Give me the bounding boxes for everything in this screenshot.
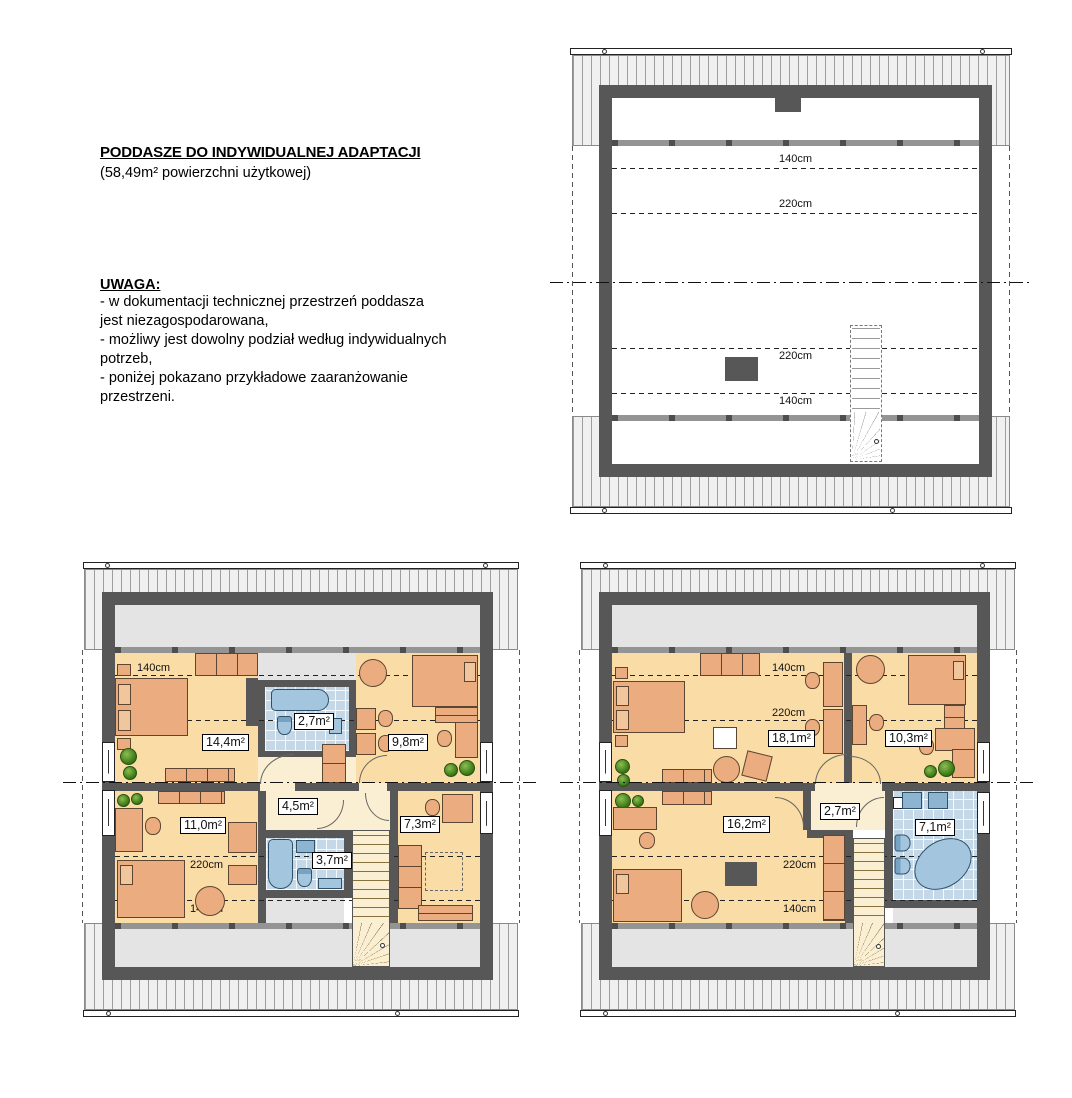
staircase bbox=[352, 830, 390, 967]
room-area-label: 7,1m² bbox=[915, 819, 955, 836]
plant-icon bbox=[117, 794, 130, 807]
room-area-label: 4,5m² bbox=[278, 798, 318, 815]
room-area-label: 10,3m² bbox=[885, 730, 932, 747]
door-opening bbox=[815, 783, 882, 791]
desk bbox=[613, 807, 657, 830]
desk bbox=[115, 808, 143, 852]
interior-wall bbox=[612, 783, 815, 791]
gutter-marker bbox=[602, 49, 607, 54]
window bbox=[599, 742, 612, 782]
toilet bbox=[277, 716, 292, 735]
knee-wall-line bbox=[612, 923, 977, 929]
washbasin bbox=[902, 792, 922, 809]
bed bbox=[613, 681, 685, 733]
low-headroom-zone bbox=[612, 605, 977, 653]
headroom-label: 140cm bbox=[612, 153, 979, 165]
headroom-label: 220cm bbox=[612, 350, 979, 362]
room-area-label: 9,8m² bbox=[388, 734, 428, 751]
window bbox=[102, 742, 115, 782]
gutter-marker bbox=[602, 508, 607, 513]
nightstand bbox=[615, 735, 628, 747]
gutter-marker bbox=[106, 1011, 111, 1016]
headroom-label: 140cm bbox=[612, 395, 979, 407]
round-table bbox=[195, 886, 225, 916]
sofa bbox=[398, 845, 422, 909]
toilet bbox=[297, 868, 312, 887]
staircase bbox=[853, 838, 885, 967]
desk bbox=[356, 733, 376, 755]
interior-wall bbox=[266, 830, 352, 838]
gutter-marker bbox=[980, 563, 985, 568]
eaves-dashed-line bbox=[519, 650, 520, 923]
interior-wall bbox=[803, 791, 811, 830]
bed bbox=[115, 678, 188, 736]
room-area-label: 2,7m² bbox=[294, 713, 334, 730]
window bbox=[977, 792, 990, 834]
shelf bbox=[944, 705, 965, 730]
desk-chair bbox=[425, 799, 440, 816]
chimney bbox=[725, 357, 758, 381]
gutter-marker bbox=[603, 563, 608, 568]
plant-icon bbox=[459, 760, 475, 776]
interior-wall bbox=[390, 791, 398, 923]
low-headroom-zone bbox=[115, 923, 480, 967]
note-line: potrzeb, bbox=[100, 350, 540, 369]
desk bbox=[356, 708, 376, 730]
washbasin bbox=[928, 792, 948, 809]
furnished-plan-variant-a: 140cm 220cm 220cm 140cm bbox=[75, 558, 527, 1023]
desk-chair bbox=[869, 714, 884, 731]
page-title: PODDASZE DO INDYWIDUALNEJ ADAPTACJI bbox=[100, 144, 530, 161]
note-line: przestrzeni. bbox=[100, 388, 540, 407]
sofa bbox=[700, 653, 760, 676]
interior-wall bbox=[885, 900, 977, 908]
sofa bbox=[195, 653, 258, 676]
eaves-dashed-line bbox=[1009, 146, 1010, 416]
headroom-line-220 bbox=[612, 348, 979, 349]
room-area-label: 2,7m² bbox=[820, 803, 860, 820]
plant-icon bbox=[444, 763, 458, 777]
note-heading: UWAGA: bbox=[100, 277, 540, 293]
pillow bbox=[118, 684, 131, 705]
bathtub bbox=[271, 689, 329, 711]
sofa bbox=[165, 768, 235, 782]
headroom-label: 220cm bbox=[190, 859, 223, 871]
sofa bbox=[662, 791, 712, 805]
low-headroom-zone bbox=[266, 898, 344, 923]
toilet bbox=[895, 835, 911, 852]
bench bbox=[318, 878, 342, 889]
plant-icon bbox=[632, 795, 644, 807]
desk bbox=[823, 709, 843, 754]
pillow bbox=[953, 661, 964, 680]
staircase-outline bbox=[850, 325, 882, 462]
stair-winders bbox=[852, 412, 880, 460]
bidet bbox=[895, 858, 911, 875]
headroom-line-140 bbox=[612, 168, 979, 169]
interior-wall bbox=[295, 783, 359, 791]
round-table bbox=[713, 756, 740, 783]
walkline-marker bbox=[876, 944, 881, 949]
room-area-label: 18,1m² bbox=[768, 730, 815, 747]
chimney bbox=[725, 862, 757, 886]
interior-wall bbox=[387, 783, 480, 791]
stair-steps bbox=[353, 835, 389, 923]
walkline-marker bbox=[874, 439, 879, 444]
pillow bbox=[616, 874, 629, 894]
note-line: - poniżej pokazano przykładowe zaaranżow… bbox=[100, 369, 540, 388]
interior-wall bbox=[882, 783, 977, 791]
room-area-label: 11,0m² bbox=[180, 817, 226, 834]
low-headroom-zone bbox=[893, 908, 977, 923]
gutter-marker bbox=[895, 1011, 900, 1016]
ridge-centerline bbox=[550, 282, 1032, 283]
room-area-label: 14,4m² bbox=[202, 734, 249, 751]
page-subtitle: (58,49m² powierzchni użytkowej) bbox=[100, 165, 530, 181]
desk bbox=[823, 662, 843, 707]
furnished-plan-variant-b: 140cm 220cm 220cm 140cm bbox=[572, 558, 1024, 1023]
shelf bbox=[435, 707, 478, 723]
sofa bbox=[158, 791, 225, 804]
interior-wall bbox=[885, 791, 893, 908]
square-table bbox=[713, 727, 737, 749]
round-table bbox=[691, 891, 719, 919]
plant-icon bbox=[123, 766, 137, 780]
room-area-label: 3,7m² bbox=[312, 852, 352, 869]
guest-bed-outline bbox=[425, 852, 463, 891]
fascia-line bbox=[570, 507, 1012, 514]
gutter-marker bbox=[890, 508, 895, 513]
door-opening bbox=[260, 783, 295, 791]
gutter-marker bbox=[395, 1011, 400, 1016]
interior-wall bbox=[258, 791, 266, 923]
desk-chair bbox=[145, 817, 161, 835]
unfurnished-attic-plan: 140cm 220cm 220cm 140cm bbox=[562, 46, 1020, 516]
pillow bbox=[464, 662, 476, 682]
desk bbox=[952, 749, 975, 778]
pillow bbox=[616, 686, 629, 706]
note-line: - możliwy jest dowolny podział według in… bbox=[100, 331, 540, 350]
room-area-label: 7,3m² bbox=[400, 816, 440, 833]
note-line: - w dokumentacji technicznej przestrzeń … bbox=[100, 293, 540, 312]
nightstand bbox=[615, 667, 628, 679]
desk-chair bbox=[378, 710, 393, 727]
headroom-label: 220cm bbox=[772, 707, 805, 719]
bed bbox=[613, 869, 682, 922]
bathtub bbox=[268, 839, 293, 889]
gutter-marker bbox=[980, 49, 985, 54]
headroom-label: 220cm bbox=[783, 859, 816, 871]
headroom-label: 140cm bbox=[137, 662, 170, 674]
eaves-dashed-line bbox=[572, 146, 573, 416]
plant-icon bbox=[617, 774, 630, 787]
fascia-line bbox=[570, 48, 1012, 55]
cabinet bbox=[418, 905, 473, 921]
fascia-line bbox=[580, 1010, 1016, 1017]
fascia-line bbox=[580, 562, 1016, 569]
desk-chair bbox=[437, 730, 452, 747]
nightstand bbox=[117, 664, 131, 676]
pillow bbox=[118, 710, 131, 731]
window bbox=[102, 790, 115, 836]
interior-wall bbox=[845, 838, 853, 923]
interior-wall bbox=[266, 890, 352, 898]
interior-wall bbox=[115, 783, 260, 791]
stair-steps bbox=[854, 843, 884, 923]
header: PODDASZE DO INDYWIDUALNEJ ADAPTACJI (58,… bbox=[100, 144, 530, 181]
plant-icon bbox=[938, 760, 955, 777]
knee-wall-line bbox=[115, 647, 480, 653]
chimney-notch bbox=[775, 98, 801, 112]
knee-wall-line bbox=[612, 140, 979, 146]
headroom-line-140 bbox=[612, 393, 979, 394]
headroom-label: 140cm bbox=[772, 662, 805, 674]
note-block: UWAGA: - w dokumentacji technicznej prze… bbox=[100, 277, 540, 407]
walkline-marker bbox=[380, 943, 385, 948]
pillow bbox=[616, 710, 629, 730]
bed bbox=[908, 655, 966, 705]
plant-icon bbox=[120, 748, 137, 765]
bed bbox=[412, 655, 478, 707]
headroom-line-220 bbox=[612, 213, 979, 214]
headroom-label: 220cm bbox=[612, 198, 979, 210]
eaves-dashed-line bbox=[82, 650, 83, 923]
plant-icon bbox=[131, 793, 143, 805]
window bbox=[480, 792, 493, 834]
plant-icon bbox=[615, 759, 630, 774]
sofa bbox=[662, 769, 712, 783]
ridge-centerline bbox=[560, 782, 1036, 783]
eaves-dashed-line bbox=[1016, 650, 1017, 923]
fascia-line bbox=[83, 562, 519, 569]
desk-chair bbox=[639, 832, 655, 849]
fascia-line bbox=[83, 1010, 519, 1017]
window bbox=[480, 742, 493, 782]
door-opening bbox=[359, 783, 387, 791]
note-line: jest niezagospodarowana, bbox=[100, 312, 540, 331]
wardrobe bbox=[228, 865, 257, 885]
wardrobe bbox=[246, 678, 258, 726]
knee-wall-line bbox=[612, 415, 979, 421]
pillow bbox=[120, 865, 133, 885]
wardrobe bbox=[228, 822, 257, 853]
stair-steps bbox=[852, 328, 880, 410]
eaves-dashed-line bbox=[579, 650, 580, 923]
round-table bbox=[856, 655, 885, 684]
desk bbox=[852, 705, 867, 745]
desk bbox=[455, 722, 478, 758]
ridge-centerline bbox=[63, 782, 539, 783]
bed bbox=[117, 860, 185, 918]
low-headroom-zone bbox=[115, 605, 480, 653]
window bbox=[977, 742, 990, 782]
gutter-marker bbox=[105, 563, 110, 568]
gutter-marker bbox=[483, 563, 488, 568]
window bbox=[599, 790, 612, 836]
low-headroom-zone bbox=[612, 923, 977, 967]
knee-wall-line bbox=[612, 647, 977, 653]
armchair bbox=[359, 659, 387, 687]
desk bbox=[935, 728, 975, 751]
headroom-label: 140cm bbox=[783, 903, 816, 915]
cabinet bbox=[322, 744, 346, 783]
desk-chair bbox=[805, 672, 820, 689]
desk bbox=[442, 794, 473, 823]
knee-wall-line bbox=[115, 923, 480, 929]
gutter-marker bbox=[603, 1011, 608, 1016]
room-area-label: 16,2m² bbox=[723, 816, 770, 833]
plant-icon bbox=[924, 765, 937, 778]
wardrobe bbox=[823, 835, 845, 921]
